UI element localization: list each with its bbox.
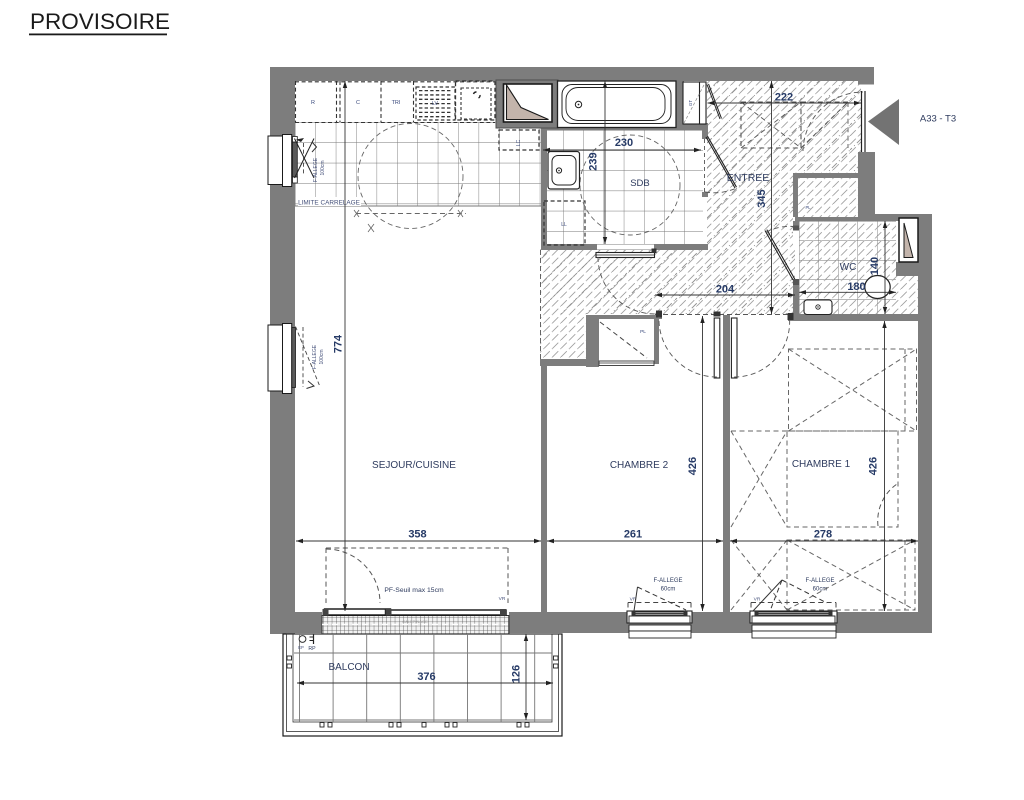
svg-text:261: 261 xyxy=(624,529,642,541)
svg-text:BALCON: BALCON xyxy=(328,662,369,673)
svg-text:426: 426 xyxy=(687,457,699,475)
svg-text:LL: LL xyxy=(561,222,567,228)
svg-text:222: 222 xyxy=(775,92,793,104)
svg-text:PL: PL xyxy=(805,205,811,210)
svg-text:774: 774 xyxy=(333,334,345,353)
svg-text:345: 345 xyxy=(756,189,768,207)
svg-text:F-ALLEGE: F-ALLEGE xyxy=(313,157,319,182)
svg-text:239: 239 xyxy=(588,152,600,170)
svg-text:PROVISOIRE: PROVISOIRE xyxy=(30,9,170,34)
svg-text:LV: LV xyxy=(432,101,438,107)
svg-text:C: C xyxy=(356,100,360,106)
svg-text:126: 126 xyxy=(511,665,523,683)
svg-text:PL: PL xyxy=(640,329,646,335)
svg-text:CHAMBRE 2: CHAMBRE 2 xyxy=(610,460,669,471)
svg-text:GT: GT xyxy=(688,100,693,107)
svg-text:SDB: SDB xyxy=(630,178,650,189)
svg-text:F-ALLEGE: F-ALLEGE xyxy=(312,344,318,369)
svg-text:60cm: 60cm xyxy=(661,587,676,593)
svg-text:WC: WC xyxy=(840,262,857,273)
svg-text:140: 140 xyxy=(869,257,881,275)
svg-text:SEJOUR/CUISINE: SEJOUR/CUISINE xyxy=(372,460,456,471)
svg-text:VR: VR xyxy=(499,596,506,602)
svg-text:EP: EP xyxy=(298,645,304,650)
svg-text:426: 426 xyxy=(868,457,880,475)
svg-text:358: 358 xyxy=(408,529,426,541)
svg-text:100cm: 100cm xyxy=(320,160,326,175)
svg-text:204: 204 xyxy=(716,284,735,296)
svg-text:RP: RP xyxy=(308,646,316,652)
svg-text:CHAMBRE 1: CHAMBRE 1 xyxy=(792,459,851,470)
svg-text:100cm: 100cm xyxy=(319,349,325,364)
svg-text:F-ALLEGE: F-ALLEGE xyxy=(653,578,682,584)
svg-text:ENTREE: ENTREE xyxy=(727,172,770,184)
svg-text:CALEPINAGE: CALEPINAGE xyxy=(402,619,428,624)
svg-text:180: 180 xyxy=(847,281,865,293)
svg-text:F-ALLEGE: F-ALLEGE xyxy=(805,578,834,584)
svg-text:230: 230 xyxy=(615,137,633,149)
svg-text:376: 376 xyxy=(417,671,435,683)
svg-text:R: R xyxy=(311,100,315,106)
svg-text:278: 278 xyxy=(814,529,832,541)
svg-text:LC: LC xyxy=(516,139,522,146)
svg-text:A33 - T3: A33 - T3 xyxy=(920,114,956,125)
svg-text:VR: VR xyxy=(754,597,761,603)
svg-text:TRI: TRI xyxy=(392,100,401,106)
svg-text:PF-Seuil max 15cm: PF-Seuil max 15cm xyxy=(384,587,444,594)
svg-text:LIMITE CARRELAGE: LIMITE CARRELAGE xyxy=(298,200,360,207)
